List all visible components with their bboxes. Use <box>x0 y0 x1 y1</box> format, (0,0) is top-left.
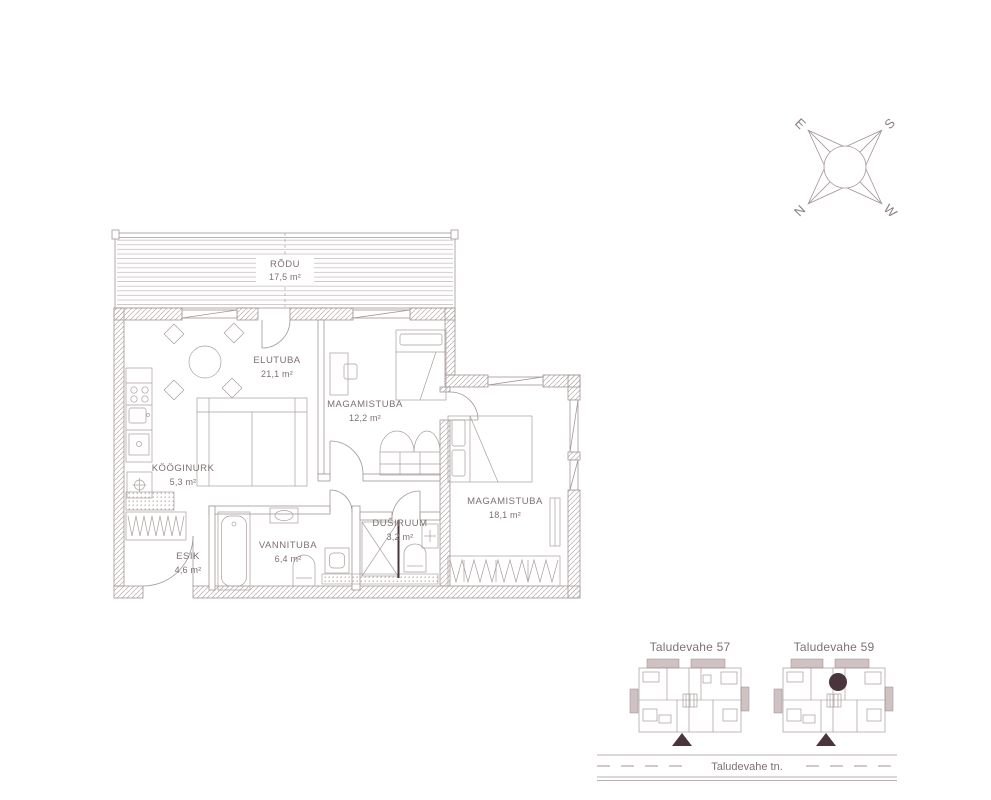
svg-text:5,3 m²: 5,3 m² <box>170 477 197 487</box>
balcony-door <box>262 320 290 348</box>
oven-icon <box>129 434 149 455</box>
entrance-triangle-57 <box>672 733 692 746</box>
svg-text:12,2 m²: 12,2 m² <box>349 413 381 423</box>
bathroom-door <box>330 490 352 512</box>
svg-text:RÕDU: RÕDU <box>270 259 300 270</box>
svg-text:17,5 m²: 17,5 m² <box>269 272 301 282</box>
building-plan-59 <box>774 659 893 732</box>
closet-folding-doors <box>380 431 440 475</box>
desk <box>330 353 357 395</box>
room-label-esik: ESIK 4,6 m² <box>175 551 202 575</box>
floor-plan-drawing: RÕDU 17,5 m² ELUTUBA 21,1 m² MAGAMISTUBA… <box>0 0 991 800</box>
svg-text:DUŠIRUUM: DUŠIRUUM <box>372 518 427 529</box>
kitchen-counter <box>126 368 152 462</box>
bed-large <box>448 416 532 482</box>
bed-small <box>396 330 446 400</box>
entrance-triangle-59 <box>816 733 836 746</box>
svg-text:MAGAMISTUBA: MAGAMISTUBA <box>467 496 543 507</box>
stove-icon <box>131 387 148 402</box>
compass-rose: E S N W <box>791 115 900 221</box>
hall-wardrobe <box>126 512 186 540</box>
sink-icon <box>129 408 150 423</box>
building-label-57: Taludevahe 57 <box>650 640 731 654</box>
window <box>570 460 578 490</box>
window <box>570 400 578 452</box>
svg-text:4,6 m²: 4,6 m² <box>175 565 202 575</box>
duct-strip <box>322 574 438 584</box>
bedroom1-door <box>330 441 363 474</box>
window <box>182 310 237 318</box>
svg-text:ESIK: ESIK <box>176 551 200 562</box>
compass-west: W <box>881 201 901 221</box>
radiator <box>550 498 560 546</box>
washing-machine <box>325 548 349 573</box>
bathtub <box>218 512 250 590</box>
building-plan-57 <box>630 659 749 732</box>
svg-text:ELUTUBA: ELUTUBA <box>253 355 300 366</box>
hall-shaft <box>126 492 174 510</box>
shower-room-door <box>392 491 420 519</box>
room-label-kooginurk: KÖÖGINURK 5,3 m² <box>152 463 215 487</box>
svg-text:21,1 m²: 21,1 m² <box>261 369 293 379</box>
wardrobe-hangers <box>448 556 560 586</box>
room-label-magamistuba-1: MAGAMISTUBA 12,2 m² <box>327 399 403 423</box>
dining-table <box>164 323 244 400</box>
room-label-dusiruum: DUŠIRUUM 3,2 m² <box>372 518 427 542</box>
room-label-elutuba: ELUTUBA 21,1 m² <box>253 355 300 379</box>
street-label: Taludevahe tn. <box>711 761 783 773</box>
svg-text:3,2 m²: 3,2 m² <box>387 532 414 542</box>
window <box>488 377 543 385</box>
svg-text:6,4 m²: 6,4 m² <box>275 554 302 564</box>
svg-text:MAGAMISTUBA: MAGAMISTUBA <box>327 399 403 410</box>
room-label-magamistuba-2: MAGAMISTUBA 18,1 m² <box>467 496 543 520</box>
room-label-vannituba: VANNITUBA 6,4 m² <box>259 540 317 564</box>
apartment-location-marker <box>829 673 847 691</box>
svg-text:VANNITUBA: VANNITUBA <box>259 540 317 551</box>
window <box>353 310 410 318</box>
street: Taludevahe tn. <box>597 755 897 781</box>
compass-south: S <box>881 115 898 132</box>
floor-plan-page: RÕDU 17,5 m² ELUTUBA 21,1 m² MAGAMISTUBA… <box>0 0 991 800</box>
building-label-59: Taludevahe 59 <box>794 640 875 654</box>
compass-north: N <box>791 202 808 219</box>
site-plan: Taludevahe 57 Taludevahe 59 <box>597 640 897 781</box>
compass-east: E <box>792 115 809 132</box>
svg-text:18,1 m²: 18,1 m² <box>489 510 521 520</box>
svg-text:KÖÖGINURK: KÖÖGINURK <box>152 463 215 474</box>
